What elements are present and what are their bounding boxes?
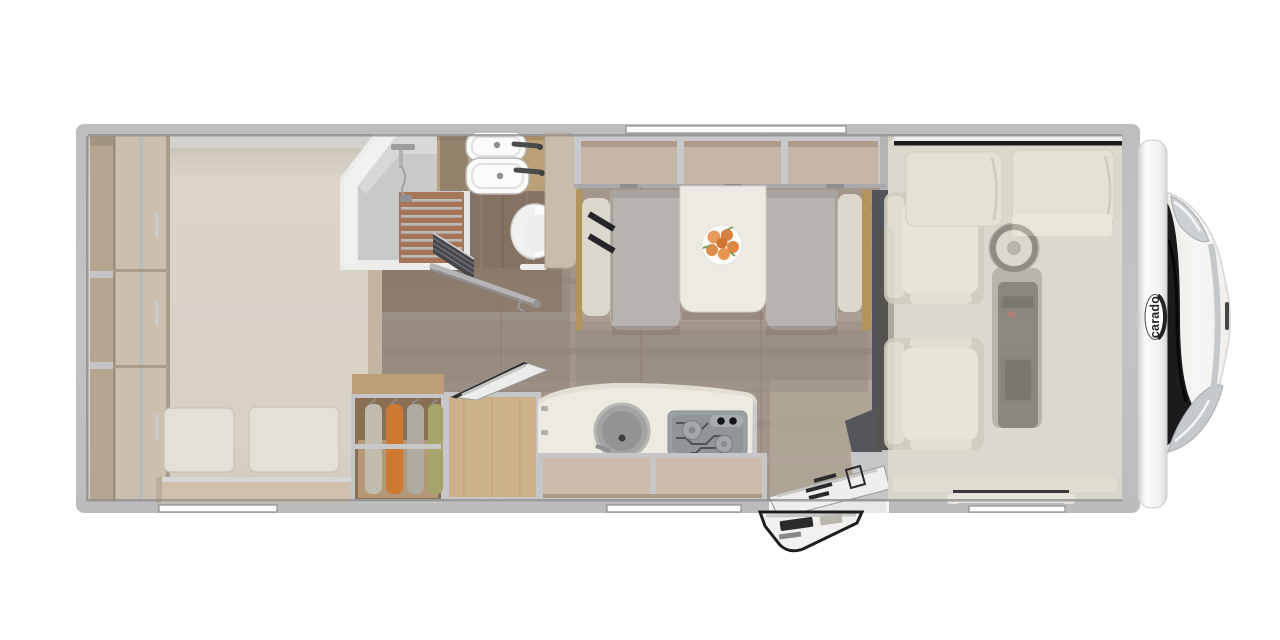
svg-text:carado: carado <box>1148 296 1162 338</box>
